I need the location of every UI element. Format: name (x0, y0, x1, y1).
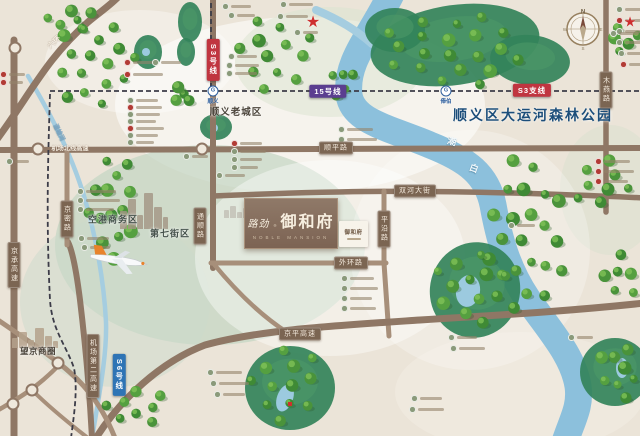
road-name-pill: 平沿路 (378, 211, 391, 248)
poi-label (629, 63, 640, 66)
poi-marker (77, 188, 116, 195)
building (35, 328, 44, 348)
poi-label (136, 113, 160, 116)
tree (419, 18, 424, 23)
road-name-pill: 京密路 (61, 201, 74, 238)
metro-station-name: 顺义 (207, 97, 218, 105)
poi-icon (341, 295, 348, 302)
poi-icon (127, 111, 134, 118)
tree (497, 234, 503, 240)
svg-text:S: S (581, 46, 584, 51)
poi-label (350, 307, 376, 310)
tree (512, 266, 517, 271)
tree (115, 233, 120, 238)
tree (172, 95, 178, 101)
card-divider (347, 238, 361, 240)
tree (173, 82, 179, 88)
tree (264, 401, 268, 405)
poi-icon (6, 158, 13, 165)
tree (81, 89, 85, 93)
poi-label (231, 5, 251, 8)
poi-icon (216, 172, 223, 179)
poi-label (136, 134, 158, 137)
card-project-name: 御和府 (344, 228, 362, 236)
tree (575, 194, 579, 198)
poi-icon (618, 50, 625, 57)
poi-label (619, 32, 639, 35)
brand-prefix: 路劲 (247, 215, 269, 230)
poi-label (420, 397, 442, 400)
tree (557, 266, 563, 272)
tree (478, 251, 482, 255)
poi-marker (341, 285, 378, 292)
tree (626, 269, 632, 275)
poi-marker (280, 1, 313, 8)
tree (306, 373, 312, 379)
poi-marker (409, 406, 444, 413)
tree (282, 40, 287, 45)
tree (113, 172, 117, 176)
poi-icon (411, 395, 418, 402)
poi-marker (226, 70, 257, 77)
poi-icon (77, 197, 84, 204)
poi-label (86, 190, 116, 193)
tree (476, 80, 481, 85)
pavilion-icon (288, 402, 292, 406)
tree (132, 409, 137, 414)
poi-marker (231, 164, 258, 171)
tree (583, 166, 588, 171)
poi-marker (124, 71, 163, 78)
svg-text:N: N (581, 10, 585, 16)
poi-label (136, 141, 154, 144)
landmark-star-icon: ★ (624, 14, 637, 31)
building (237, 212, 242, 218)
tree (541, 262, 546, 267)
tree (44, 14, 48, 18)
brand-registered-mark: ® (273, 223, 276, 228)
building (12, 338, 18, 348)
tree (508, 155, 514, 161)
poi-icon (127, 118, 134, 125)
poi-icon (124, 59, 131, 66)
poi-label (235, 64, 259, 67)
tree (496, 44, 502, 50)
poi-label (225, 174, 245, 177)
poi-icon (280, 1, 287, 8)
poi-marker (222, 3, 251, 10)
tree (254, 35, 261, 42)
poi-label (161, 61, 181, 64)
poi-marker (618, 50, 640, 57)
poi-marker (152, 59, 181, 66)
tree (504, 185, 508, 189)
poi-icon (77, 206, 84, 213)
building (144, 193, 153, 229)
building (163, 217, 168, 229)
park-area (183, 8, 198, 30)
poi-label (136, 120, 156, 123)
tree (63, 92, 69, 98)
poi-marker (508, 222, 535, 229)
tree (81, 26, 85, 30)
poi-marker (568, 334, 593, 341)
poi-icon (610, 30, 617, 37)
tree (96, 214, 102, 220)
poi-marker (0, 71, 25, 78)
poi-icon (226, 62, 233, 69)
poi-icon (595, 158, 602, 165)
poi-icon (277, 13, 284, 20)
poi-icon (214, 391, 221, 398)
tree (58, 68, 63, 73)
park-area (180, 42, 191, 57)
poi-marker (207, 369, 242, 376)
project-location-card: 御和府 (339, 221, 368, 247)
tree (619, 362, 626, 369)
tree (123, 160, 128, 165)
tree (304, 402, 309, 407)
building (137, 215, 143, 229)
poi-marker (616, 39, 640, 46)
road-name-pill: 京承高速 (8, 242, 21, 288)
poi-marker (228, 53, 257, 60)
poi-icon (620, 61, 627, 68)
tree (274, 69, 278, 73)
landmark-star-icon: ★ (306, 12, 320, 32)
poi-icon (341, 305, 348, 312)
building (224, 210, 229, 218)
poi-icon (338, 126, 345, 133)
poi-marker (77, 197, 120, 204)
road-name-pill: 木燕路 (600, 72, 613, 109)
poi-label (517, 224, 535, 227)
tree (630, 375, 634, 379)
poi-icon (568, 334, 575, 341)
poi-icon (616, 39, 623, 46)
building (28, 340, 34, 348)
poi-label (192, 155, 208, 158)
tree (435, 268, 439, 272)
tree (514, 55, 520, 61)
tree (95, 36, 100, 41)
poi-label (237, 55, 257, 58)
tree (518, 184, 525, 191)
tree (584, 181, 589, 186)
tree (630, 289, 634, 293)
poi-label (289, 3, 313, 6)
poi-icon (127, 132, 134, 139)
tree (349, 70, 354, 75)
tree (517, 235, 523, 241)
tree (394, 42, 400, 48)
poi-label (286, 15, 308, 18)
road-junction (53, 358, 64, 369)
building (120, 211, 127, 229)
brand-name-row: 路劲 ® 御和府 (247, 208, 334, 232)
poi-label (350, 287, 378, 290)
poi-label (235, 72, 257, 75)
tree (470, 30, 476, 36)
poi-label (240, 166, 258, 169)
tree (385, 29, 390, 34)
building (154, 207, 162, 229)
tree (625, 185, 629, 189)
tree (329, 72, 333, 76)
road-junction (10, 43, 21, 54)
tree (540, 291, 545, 296)
tree (507, 213, 514, 220)
poi-icon (341, 275, 348, 282)
poi-label (136, 99, 158, 102)
tree (117, 415, 121, 419)
poi-label (86, 199, 120, 202)
poi-label (604, 180, 628, 183)
poi-icon (450, 345, 457, 352)
poi-label (216, 371, 242, 374)
poi-icon (231, 164, 238, 171)
poi-marker (341, 305, 376, 312)
metro-line-pill: S6号线 (113, 354, 126, 396)
tree (298, 51, 304, 57)
poi-marker (127, 97, 158, 104)
tree (276, 23, 280, 27)
building (230, 206, 236, 218)
poi-label (350, 277, 374, 280)
building (53, 341, 58, 348)
road-name-pill: 通顺路 (194, 208, 207, 245)
poi-marker (277, 13, 308, 20)
poi-icon (341, 285, 348, 292)
poi-label (9, 73, 25, 76)
poi-icon (0, 79, 7, 86)
tree (103, 157, 107, 161)
tree (280, 346, 285, 351)
project-name-en: NOBLE MANSION (253, 235, 330, 240)
tree (276, 416, 282, 422)
tree (68, 50, 73, 55)
poi-label (627, 52, 640, 55)
tree (87, 8, 93, 14)
poi-icon (77, 188, 84, 195)
poi-marker (595, 158, 630, 165)
tree (261, 363, 267, 369)
road-name-pill: 双河大街 (394, 185, 436, 198)
tree (114, 44, 120, 50)
metro-station-name: 俸伯 (440, 97, 451, 105)
poi-icon (231, 140, 238, 147)
poi-label (219, 382, 249, 385)
poi-icon (0, 71, 7, 78)
poi-marker (77, 206, 114, 213)
metro-station-icon: G (208, 86, 219, 97)
poi-icon (226, 70, 233, 77)
poi-icon (78, 235, 85, 242)
poi-icon (127, 104, 134, 111)
tree (110, 23, 115, 28)
poi-icon (448, 334, 455, 341)
metro-station-icon: G (441, 86, 452, 97)
poi-label (604, 170, 634, 173)
compass-icon: N E S W (561, 7, 605, 51)
road-name-pill: 外环路 (334, 257, 368, 270)
poi-label (240, 150, 266, 153)
tree (309, 354, 313, 358)
tree (149, 403, 154, 408)
tree (461, 308, 467, 314)
tree (185, 96, 190, 101)
poi-icon (231, 156, 238, 163)
poi-label (604, 160, 630, 163)
tree (443, 34, 450, 41)
poi-marker (210, 380, 249, 387)
tree (287, 380, 293, 386)
building (128, 199, 136, 229)
location-map: 顺义老城区顺义区大运河森林公园空港商务区第七街区望京商圈潮白温榆河顺平路双河大街… (0, 0, 640, 436)
poi-marker (448, 334, 477, 341)
poi-icon (294, 29, 301, 36)
poi-marker (231, 148, 266, 155)
poi-icon (127, 139, 134, 146)
tree (288, 361, 295, 368)
road-name-pill: 顺平路 (319, 142, 353, 155)
poi-icon (231, 148, 238, 155)
poi-icon (228, 12, 235, 19)
road (32, 390, 88, 436)
tree (488, 209, 495, 216)
tree (454, 20, 458, 24)
tree (553, 195, 560, 202)
tree (621, 393, 627, 399)
poi-icon (222, 3, 229, 10)
city-skyline (12, 328, 58, 348)
poi-icon (616, 6, 623, 13)
tree (603, 184, 609, 190)
poi-marker (228, 12, 255, 19)
tree (552, 236, 558, 242)
poi-label (136, 127, 164, 130)
poi-marker (231, 140, 262, 147)
poi-label (136, 106, 162, 109)
tree (292, 75, 297, 80)
project-name: 御和府 (281, 208, 335, 232)
tree (614, 267, 619, 272)
poi-label (86, 208, 114, 211)
poi-marker (595, 178, 628, 185)
poi-label (347, 128, 373, 131)
tree (526, 209, 532, 215)
building (19, 332, 27, 348)
poi-marker (411, 395, 442, 402)
tree (260, 85, 265, 90)
poi-icon (127, 97, 134, 104)
tree (390, 61, 395, 66)
tree (600, 270, 606, 276)
poi-marker (127, 125, 164, 132)
poi-label (347, 138, 377, 141)
tree (492, 291, 498, 297)
project-brand-plate: 路劲 ® 御和府 NOBLE MANSION (244, 198, 338, 249)
tree (485, 65, 492, 72)
poi-marker (127, 132, 158, 139)
poi-label (240, 158, 262, 161)
tree (528, 258, 532, 262)
poi-label (350, 297, 372, 300)
poi-marker (127, 104, 162, 111)
tree (610, 352, 616, 358)
tree (509, 303, 515, 309)
poi-label (459, 347, 485, 350)
poi-marker (231, 156, 262, 163)
poi-icon (210, 380, 217, 387)
poi-icon (616, 17, 623, 24)
poi-label (223, 393, 245, 396)
tree (499, 28, 504, 33)
poi-marker (338, 126, 373, 133)
poi-marker (616, 6, 640, 13)
tree (268, 382, 273, 387)
poi-icon (127, 125, 134, 132)
tree (131, 387, 137, 393)
tree (438, 77, 442, 81)
tree (597, 352, 603, 358)
poi-marker (6, 158, 29, 165)
poi-icon (228, 53, 235, 60)
poi-marker (0, 79, 23, 86)
tree (478, 13, 483, 18)
metro-line-pill: 15号线 (309, 85, 346, 98)
poi-label (133, 73, 163, 76)
tree (417, 63, 422, 68)
tree (420, 49, 425, 54)
poi-marker (226, 62, 259, 69)
poi-label (577, 336, 593, 339)
tree (445, 50, 451, 56)
poi-label (15, 160, 29, 163)
tree (475, 294, 480, 299)
tree (478, 318, 484, 324)
poi-icon (595, 178, 602, 185)
tree (99, 100, 103, 104)
poi-marker (620, 61, 640, 68)
tree (56, 20, 61, 25)
tree (102, 80, 107, 85)
tree (125, 187, 131, 193)
tree (120, 398, 125, 403)
tree (596, 197, 602, 203)
city-skyline (120, 193, 168, 229)
road-junction (33, 144, 44, 155)
tree (614, 381, 618, 385)
tree (262, 51, 268, 57)
poi-label (9, 81, 23, 84)
tree (148, 418, 153, 423)
poi-marker (595, 168, 634, 175)
poi-label (237, 14, 255, 17)
metro-line-pill: S3支线 (513, 84, 551, 97)
tree (540, 221, 545, 226)
poi-label (240, 142, 262, 145)
tree (340, 71, 344, 75)
metro-line-pill: S3号线 (207, 39, 220, 81)
poi-marker (610, 30, 639, 37)
tree (522, 289, 527, 294)
tree (235, 44, 241, 50)
poi-icon (124, 71, 131, 78)
tree (59, 30, 65, 36)
tree (529, 163, 534, 168)
poi-marker (214, 391, 245, 398)
